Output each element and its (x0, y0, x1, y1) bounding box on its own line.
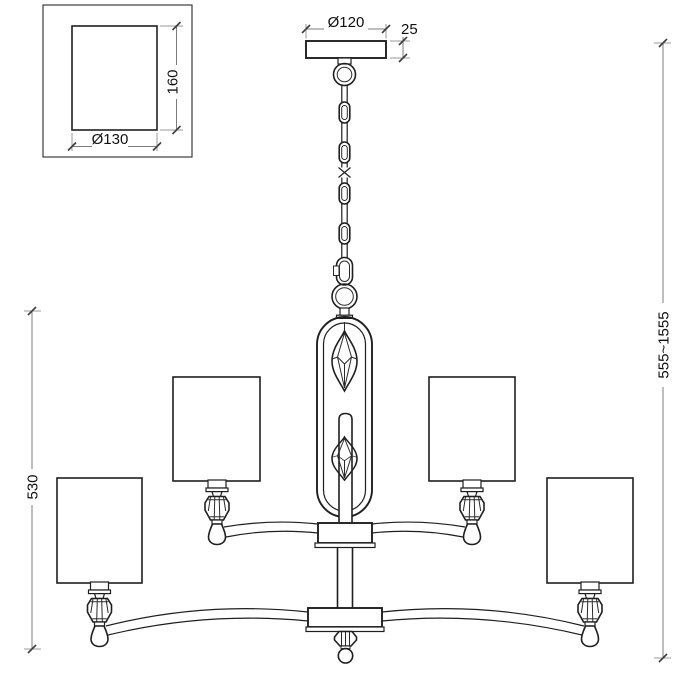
arm-upper-left (224, 522, 318, 537)
shade-upper-left (173, 377, 260, 481)
ceiling-canopy (306, 41, 386, 58)
detail-box: 160 Ø130 (43, 5, 192, 157)
dim-canopy-diameter: Ø120 (302, 14, 390, 39)
dim-label-overall-height: 555~1555 (656, 311, 673, 378)
candle-upper-left (205, 480, 229, 545)
shade-lower-right (547, 478, 633, 583)
chain-link (339, 223, 350, 244)
dim-canopy-height: 25 (390, 21, 418, 62)
dim-label-canopy-height: 25 (401, 21, 418, 38)
technical-drawing-page: 160 Ø130 Ø120 25 530 555~1555 (0, 0, 700, 700)
dim-label-shade-diameter: Ø130 (92, 131, 129, 148)
shade-lower-left (57, 478, 142, 583)
canopy-assembly (306, 41, 386, 86)
chain-link (339, 142, 350, 163)
chain (332, 86, 357, 319)
chain-link (339, 102, 350, 123)
dim-overall-height: 555~1555 (654, 39, 673, 662)
frame-connector (340, 308, 349, 316)
dim-label-canopy-diameter: Ø120 (328, 14, 365, 31)
dim-shade-height: 160 (160, 22, 183, 134)
candle-upper-right (460, 480, 484, 545)
arm-lower-left (104, 609, 308, 636)
dim-label-body-height: 530 (25, 474, 42, 499)
finial-ball (338, 649, 352, 663)
lower-rod (338, 543, 353, 609)
lower-hub (306, 608, 384, 632)
finial (335, 632, 357, 664)
crystal-drop-upper (332, 331, 357, 391)
dim-shade-diameter: Ø130 (68, 131, 161, 151)
dim-label-shade-height: 160 (165, 69, 182, 94)
chain-link (339, 183, 350, 204)
dim-body-height: 530 (24, 307, 42, 653)
shade-upper-right (429, 377, 515, 481)
candle-lower-right (578, 582, 602, 647)
chandelier-drawing: 160 Ø130 Ø120 25 530 555~1555 (0, 0, 700, 700)
chain-break-icon (339, 168, 351, 178)
arm-upper-right (372, 522, 465, 537)
candle-lower-left (88, 582, 112, 647)
detail-shade (72, 26, 157, 130)
arm-lower-right (382, 609, 586, 636)
upper-hub (315, 523, 375, 548)
carabiner (334, 258, 353, 286)
